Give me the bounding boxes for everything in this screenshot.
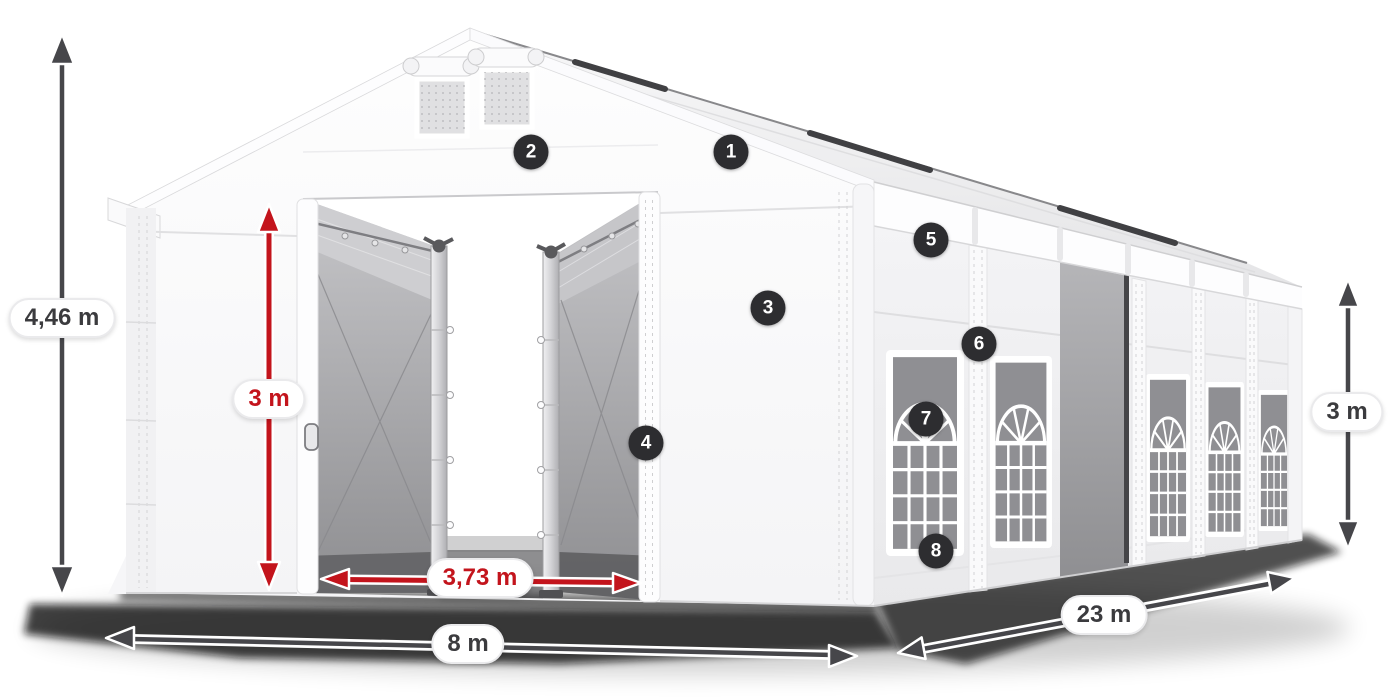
door-handle	[305, 424, 318, 450]
callout-badge-1[interactable]: 1	[714, 135, 749, 170]
dim-label-total-height: 4,46 m	[9, 298, 116, 338]
side-door-opening	[1060, 240, 1131, 578]
dim-label-door-width: 3,73 m	[427, 558, 534, 598]
callout-badge-2[interactable]: 2	[514, 135, 549, 170]
diagram-canvas: 1 2 3 4 5 6 7 8 4,46 m 3 m 3,73 m 8 m 23…	[0, 0, 1400, 700]
dim-label-front-width: 8 m	[431, 624, 504, 664]
tent-illustration	[0, 0, 1400, 700]
dim-label-side-length: 23 m	[1061, 595, 1148, 635]
callout-badge-4[interactable]: 4	[629, 426, 664, 461]
dim-label-side-height: 3 m	[1310, 392, 1383, 432]
callout-badge-5[interactable]: 5	[914, 223, 949, 258]
callout-badge-3[interactable]: 3	[751, 291, 786, 326]
callout-badge-8[interactable]: 8	[919, 534, 954, 569]
callout-badge-6[interactable]: 6	[962, 327, 997, 362]
dim-label-inner-height: 3 m	[232, 379, 305, 419]
tent-interior	[303, 192, 658, 601]
front-door-right-edge	[639, 192, 660, 602]
callout-badge-7[interactable]: 7	[909, 402, 944, 437]
